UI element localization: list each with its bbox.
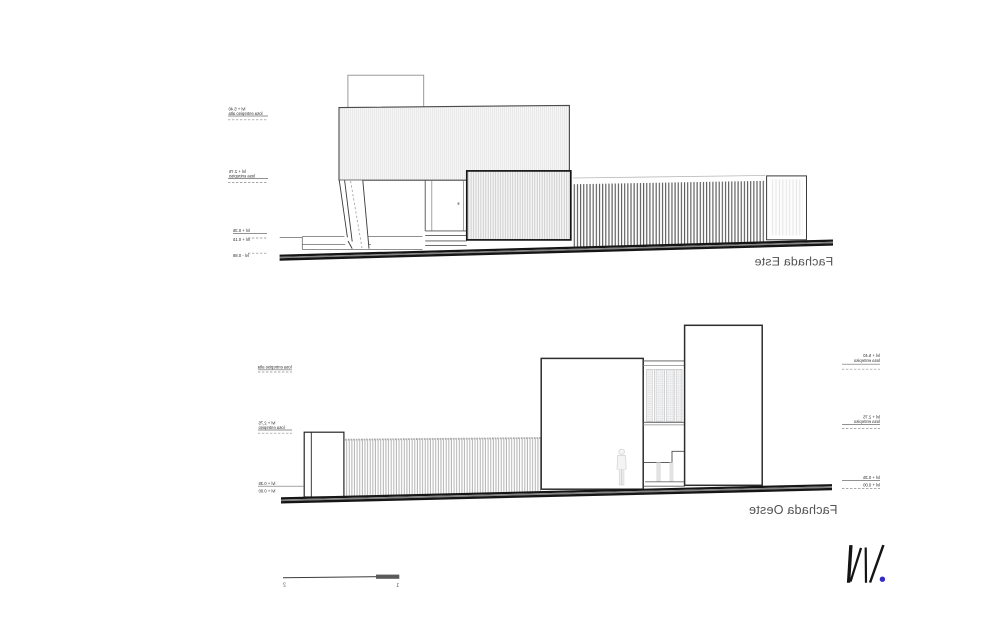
svg-text:losa entrepiso alta: losa entrepiso alta <box>257 364 292 369</box>
svg-text:lvl + 0.00: lvl + 0.00 <box>862 483 880 488</box>
svg-text:Fachada Oeste: Fachada Oeste <box>749 503 838 517</box>
svg-text:losa entrepiso: losa entrepiso <box>853 419 880 424</box>
svg-text:1: 1 <box>396 583 399 589</box>
svg-text:lvl + 0.00: lvl + 0.00 <box>258 488 276 493</box>
svg-text:losa entrepiso: losa entrepiso <box>228 173 255 178</box>
svg-text:2: 2 <box>283 583 286 589</box>
svg-text:lvl + 0.35: lvl + 0.35 <box>258 481 276 486</box>
svg-text:lvl + 0.35: lvl + 0.35 <box>232 228 250 233</box>
svg-text:losa entrepiso: losa entrepiso <box>258 425 285 430</box>
svg-text:lvl - 0.88: lvl - 0.88 <box>232 253 248 258</box>
svg-text:lvl + 0.15: lvl + 0.15 <box>232 237 250 242</box>
svg-text:losa entrepiso: losa entrepiso <box>853 358 880 363</box>
svg-text:losa entrepiso alta: losa entrepiso alta <box>228 111 263 116</box>
svg-text:lvl + 0.35: lvl + 0.35 <box>862 475 880 480</box>
svg-text:Fachada Este: Fachada Este <box>754 255 833 269</box>
